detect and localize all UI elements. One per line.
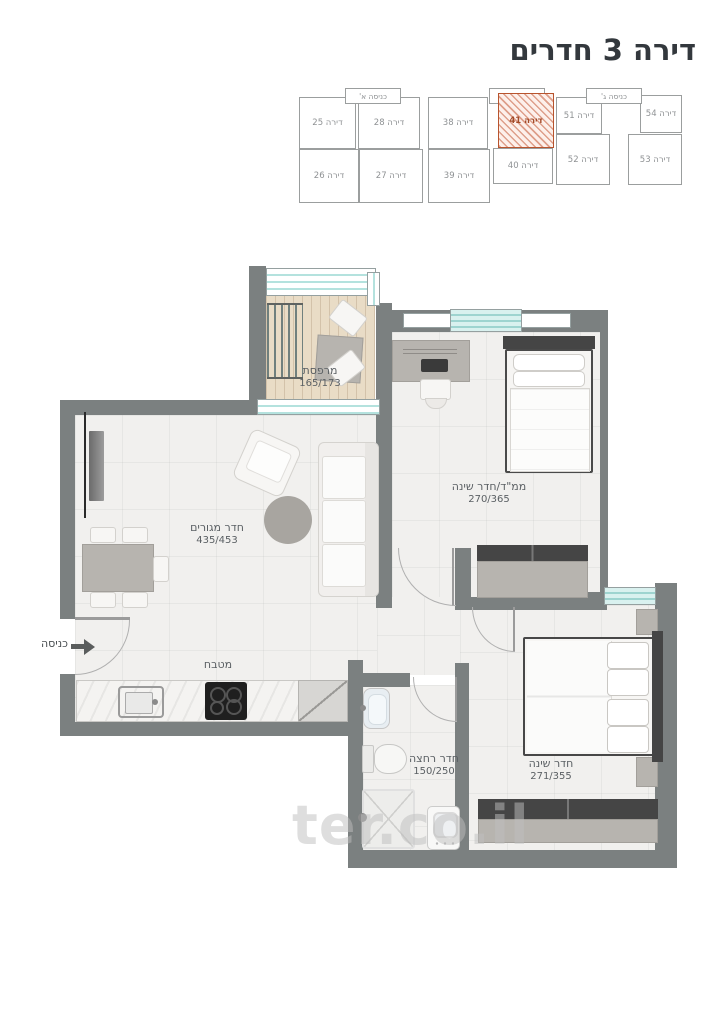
wall xyxy=(60,400,75,619)
room-label-living: חדר מגורים 435/453 xyxy=(157,521,277,547)
balcony-glass-side xyxy=(367,272,380,306)
single-bed-headboard xyxy=(503,336,595,349)
window-sill xyxy=(520,313,571,328)
sink-faucet xyxy=(152,699,158,705)
sofa-seat xyxy=(322,456,366,499)
dining-chair xyxy=(90,592,116,608)
room-label-balcony: מרפסת 165/173 xyxy=(268,364,372,390)
entrance-arrow-icon xyxy=(84,639,95,655)
sofa xyxy=(318,442,379,597)
wardrobe-body xyxy=(477,561,588,598)
desk-shelf-line xyxy=(403,349,457,354)
tv-wall-line xyxy=(84,412,86,518)
kitchen-sink xyxy=(118,686,164,718)
duvet xyxy=(510,388,590,472)
unit-53: דירה 53 xyxy=(628,134,682,185)
pillow xyxy=(607,726,649,753)
dining-chair xyxy=(153,556,169,582)
entrance-arrow-shaft xyxy=(71,644,84,649)
sink-basin xyxy=(125,692,153,714)
wall xyxy=(60,400,266,415)
pillow xyxy=(513,371,585,387)
page-title: דירה 3 חדרים xyxy=(509,33,696,67)
bathroom-sink xyxy=(363,688,390,729)
unit-40: דירה 40 xyxy=(493,148,553,184)
window-sill xyxy=(403,313,452,328)
wall xyxy=(60,722,360,736)
dining-table xyxy=(82,544,154,592)
cooktop xyxy=(205,682,247,720)
unit-41-highlighted: דירה 41 xyxy=(498,93,554,148)
unit-25: דירה 25 xyxy=(299,97,356,149)
entrance-c-tab: כניסה ג' xyxy=(586,88,642,104)
balcony-glass-rail xyxy=(266,268,376,296)
room-label-kitchen: מטבח xyxy=(178,658,258,672)
wall xyxy=(600,310,608,597)
dining-chair xyxy=(122,527,148,543)
wall xyxy=(358,673,410,687)
bed-headboard xyxy=(652,631,663,762)
burner xyxy=(226,699,242,715)
unit-54: דירה 54 xyxy=(640,95,682,133)
floor-plan-page: דירה 3 חדרים כניסה א' כניסה ב' כניסה ג' … xyxy=(0,0,724,1024)
unit-27: דירה 27 xyxy=(359,149,423,203)
sink-bowl xyxy=(368,694,387,725)
desk-chair xyxy=(420,379,451,400)
burner xyxy=(210,701,224,715)
armchair-seat xyxy=(245,439,293,484)
safe-room-window xyxy=(450,309,522,332)
wardrobe-top xyxy=(477,545,588,561)
dining-chair xyxy=(90,527,116,543)
room-label-bathroom: חדר רחצה 150/250 xyxy=(392,752,476,778)
unit-38: דירה 38 xyxy=(428,97,488,149)
bedroom-window xyxy=(604,587,656,605)
unit-52: דירה 52 xyxy=(556,134,610,185)
toilet-tank xyxy=(362,745,374,773)
desk xyxy=(392,340,470,382)
room-label-safe-room: ממ"ד/חדר שינה 270/365 xyxy=(429,480,549,506)
room-label-bedroom: חדר שינה 271/355 xyxy=(491,757,611,783)
sofa-back xyxy=(365,443,378,596)
pillow xyxy=(607,669,649,696)
corner-cabinet xyxy=(298,680,348,722)
pillow xyxy=(607,642,649,669)
entrance-label: כניסה xyxy=(22,637,68,650)
key-plan: כניסה א' כניסה ב' כניסה ג' דירה 25 דירה … xyxy=(295,86,697,218)
pillow xyxy=(607,699,649,726)
wall xyxy=(249,266,266,415)
dining-chair xyxy=(122,592,148,608)
unit-39: דירה 39 xyxy=(428,149,490,203)
sink-faucet xyxy=(360,705,366,711)
tv xyxy=(89,431,104,501)
duvet xyxy=(527,641,612,752)
sofa-seat xyxy=(322,500,366,543)
unit-28: דירה 28 xyxy=(358,97,420,149)
watermark: ter.co.il xyxy=(292,794,530,857)
desk-monitor xyxy=(421,359,448,372)
double-bed xyxy=(523,637,657,756)
entrance-a-tab: כניסה א' xyxy=(345,88,401,104)
sofa-seat xyxy=(322,544,366,587)
unit-26: דירה 26 xyxy=(299,149,359,203)
pillow xyxy=(513,354,585,371)
single-bed xyxy=(505,349,593,473)
balcony-sliding-door xyxy=(257,399,380,415)
